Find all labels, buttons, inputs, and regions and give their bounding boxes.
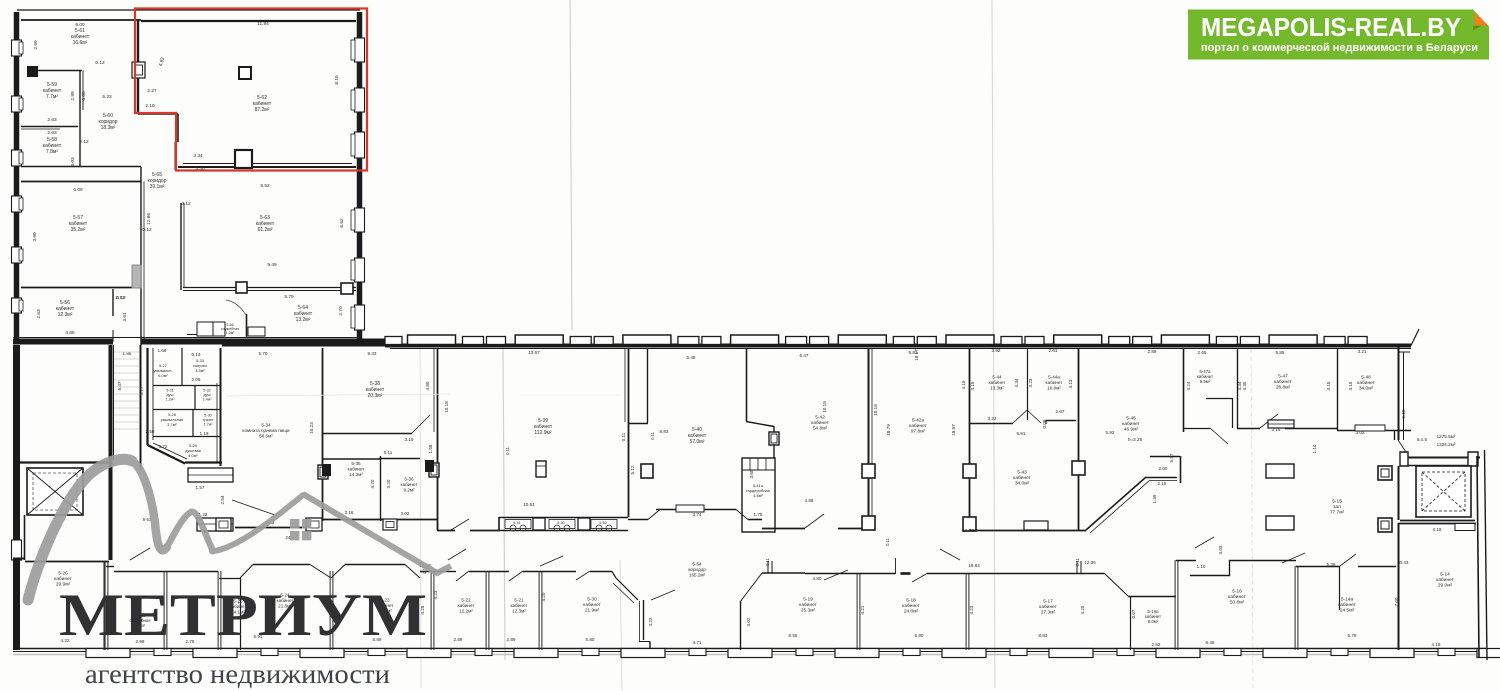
- svg-text:13.3м²: 13.3м²: [990, 385, 1004, 390]
- svg-text:3.21: 3.21: [1358, 349, 1367, 354]
- svg-text:77.7м²: 77.7м²: [1330, 510, 1345, 516]
- svg-text:1.10: 1.10: [1312, 444, 1317, 453]
- svg-text:25.3м²: 25.3м²: [801, 608, 816, 614]
- svg-text:3.16: 3.16: [1272, 427, 1281, 432]
- svg-text:2.27: 2.27: [147, 88, 157, 94]
- svg-text:5.77: 5.77: [139, 386, 144, 395]
- svg-text:5-38: 5-38: [370, 381, 380, 387]
- svg-text:1324.2м²: 1324.2м²: [1437, 442, 1456, 447]
- svg-text:5.91: 5.91: [1017, 431, 1026, 436]
- svg-text:5.23: 5.23: [102, 94, 112, 100]
- svg-text:5-15: 5-15: [1332, 498, 1342, 504]
- svg-text:5-22: 5-22: [461, 598, 471, 603]
- svg-text:5-32: 5-32: [203, 388, 210, 392]
- svg-text:6.09: 6.09: [73, 187, 83, 193]
- svg-text:кабинет: кабинет: [253, 101, 272, 107]
- svg-text:кабинет: кабинет: [366, 387, 385, 393]
- svg-text:3.30: 3.30: [195, 166, 205, 172]
- svg-text:4.13: 4.13: [1068, 379, 1073, 388]
- svg-text:5-51: 5-51: [513, 521, 521, 525]
- svg-text:5-61: 5-61: [75, 28, 85, 34]
- svg-text:кабинет: кабинет: [811, 420, 829, 426]
- svg-text:5-63: 5-63: [260, 215, 270, 221]
- svg-text:портал о коммерческой недвижим: портал о коммерческой недвижимости в Бел…: [1201, 42, 1478, 54]
- svg-text:0.07: 0.07: [1131, 609, 1136, 618]
- svg-text:5.80: 5.80: [586, 637, 595, 642]
- svg-text:0.12: 0.12: [116, 295, 126, 301]
- svg-text:0.12: 0.12: [142, 227, 152, 233]
- svg-text:13.67: 13.67: [528, 350, 540, 355]
- svg-text:кабинет: кабинет: [1436, 577, 1454, 583]
- svg-text:5-42а: 5-42а: [912, 417, 925, 423]
- svg-text:1.2м²: 1.2м²: [166, 398, 176, 402]
- svg-text:8.0м²: 8.0м²: [1148, 619, 1159, 624]
- svg-text:12.86: 12.86: [146, 213, 152, 225]
- svg-text:5-52: 5-52: [599, 521, 607, 525]
- svg-text:87.2м²: 87.2м²: [255, 107, 270, 113]
- svg-text:3.12: 3.12: [181, 201, 191, 207]
- svg-text:2.59: 2.59: [33, 40, 39, 50]
- svg-text:0.11: 0.11: [621, 432, 626, 441]
- svg-text:2.99: 2.99: [70, 91, 76, 101]
- svg-text:6.48: 6.48: [1206, 640, 1215, 645]
- svg-text:4.22: 4.22: [648, 617, 653, 626]
- svg-text:12.3м²: 12.3м²: [512, 608, 526, 613]
- svg-text:35.2м²: 35.2м²: [71, 227, 86, 233]
- svg-text:39.1м²: 39.1м²: [150, 184, 165, 190]
- svg-text:5-44а: 5-44а: [1048, 375, 1060, 380]
- svg-text:1.57: 1.57: [196, 485, 205, 490]
- svg-text:4.8м²: 4.8м²: [753, 493, 763, 498]
- svg-text:5-47: 5-47: [1278, 373, 1288, 379]
- svg-text:7.00: 7.00: [1394, 597, 1399, 606]
- svg-text:12.36: 12.36: [1084, 560, 1096, 565]
- svg-text:кабинет: кабинет: [71, 34, 90, 40]
- svg-text:46.9м²: 46.9м²: [1124, 427, 1139, 433]
- svg-text:4.66: 4.66: [65, 330, 75, 336]
- svg-text:9.2м²: 9.2м²: [403, 487, 415, 492]
- svg-text:2.10: 2.10: [145, 103, 155, 109]
- svg-text:2.89: 2.89: [454, 637, 463, 642]
- svg-text:5-34: 5-34: [261, 422, 271, 427]
- svg-text:5-31: 5-31: [166, 388, 173, 392]
- svg-text:коридор: коридор: [98, 119, 117, 125]
- svg-text:3.02: 3.02: [746, 617, 751, 626]
- svg-text:7.7м²: 7.7м²: [46, 94, 58, 100]
- svg-text:кабинет: кабинет: [1046, 380, 1064, 385]
- svg-text:21.9м²: 21.9м²: [585, 608, 600, 614]
- svg-text:1.75: 1.75: [754, 512, 763, 517]
- svg-text:0.11: 0.11: [650, 431, 655, 440]
- svg-text:9.52: 9.52: [260, 183, 270, 189]
- svg-text:112.9м²: 112.9м²: [534, 430, 552, 436]
- svg-text:2.89: 2.89: [507, 637, 516, 642]
- svg-text:5-40: 5-40: [692, 427, 702, 433]
- svg-text:кабинет: кабинет: [348, 466, 366, 471]
- svg-text:5-14: 5-14: [1440, 571, 1450, 577]
- svg-text:5-54: 5-54: [692, 562, 702, 567]
- svg-text:кабинет: кабинет: [43, 88, 62, 94]
- svg-text:6.47: 6.47: [800, 353, 809, 358]
- svg-text:зал: зал: [1333, 505, 1341, 510]
- svg-text:5.48: 5.48: [687, 355, 696, 360]
- svg-text:2.67: 2.67: [1056, 409, 1065, 414]
- svg-text:МЕТРИУМ: МЕТРИУМ: [59, 582, 427, 648]
- svg-text:1.39: 1.39: [1152, 494, 1157, 503]
- svg-text:2.70: 2.70: [338, 306, 344, 316]
- svg-text:6.0м²: 6.0м²: [158, 373, 168, 378]
- svg-text:кабинет: кабинет: [1013, 475, 1031, 481]
- svg-text:5-14а: 5-14а: [1341, 596, 1354, 602]
- svg-text:19.78: 19.78: [962, 528, 974, 533]
- svg-text:кабинет: кабинет: [688, 433, 707, 439]
- svg-text:4.23: 4.23: [1028, 378, 1033, 387]
- svg-text:4.15: 4.15: [1348, 381, 1353, 390]
- svg-text:5-44: 5-44: [992, 375, 1002, 380]
- svg-text:коридор: коридор: [688, 567, 706, 572]
- svg-text:5-60: 5-60: [103, 113, 113, 119]
- svg-text:10.18: 10.18: [873, 404, 878, 416]
- svg-text:3.90: 3.90: [32, 232, 38, 242]
- svg-text:5-57: 5-57: [73, 215, 83, 221]
- svg-text:5.18: 5.18: [1401, 409, 1406, 418]
- svg-text:12.3м²: 12.3м²: [58, 312, 73, 318]
- svg-text:14.3м²: 14.3м²: [349, 472, 363, 477]
- svg-text:кабинет: кабинет: [458, 603, 476, 608]
- svg-text:56.6м²: 56.6м²: [259, 434, 273, 439]
- svg-text:165.2м²: 165.2м²: [689, 572, 706, 577]
- svg-text:душ: душ: [204, 393, 211, 397]
- svg-text:1.10: 1.10: [1197, 564, 1206, 569]
- svg-text:18.79: 18.79: [886, 424, 891, 436]
- svg-text:4.23: 4.23: [433, 590, 438, 599]
- svg-text:18.3м²: 18.3м²: [101, 125, 116, 131]
- svg-text:3.03: 3.03: [70, 157, 76, 167]
- svg-text:5-45: 5-45: [1126, 415, 1136, 421]
- svg-text:13.2м²: 13.2м²: [296, 317, 311, 323]
- svg-text:26.8м²: 26.8м²: [1276, 385, 1291, 391]
- svg-text:0.08: 0.08: [1042, 419, 1047, 428]
- svg-text:5-19: 5-19: [803, 596, 813, 602]
- svg-text:5-64: 5-64: [298, 305, 308, 311]
- svg-text:7.8м²: 7.8м²: [46, 149, 58, 155]
- svg-text:6.47: 6.47: [117, 381, 122, 390]
- svg-text:10.61: 10.61: [523, 502, 535, 507]
- svg-text:4.18: 4.18: [1433, 527, 1442, 532]
- svg-text:5-30: 5-30: [204, 413, 211, 417]
- svg-text:3.61: 3.61: [122, 312, 128, 322]
- svg-text:2.63: 2.63: [47, 117, 57, 123]
- svg-text:2.63: 2.63: [36, 309, 42, 319]
- svg-text:4.21: 4.21: [860, 605, 865, 614]
- svg-text:5.79: 5.79: [284, 294, 294, 300]
- svg-text:24: 24: [286, 535, 291, 540]
- svg-text:3.65: 3.65: [749, 469, 754, 478]
- svg-text:4.80: 4.80: [425, 381, 430, 390]
- svg-text:3.22: 3.22: [988, 416, 997, 421]
- svg-text:кабинет: кабинет: [1338, 602, 1356, 608]
- svg-text:2.00: 2.00: [1159, 466, 1168, 471]
- svg-text:27.3м²: 27.3м²: [1041, 610, 1056, 616]
- svg-text:0.12: 0.12: [95, 60, 105, 66]
- svg-text:4.20: 4.20: [541, 592, 546, 601]
- svg-text:4.15: 4.15: [1326, 381, 1331, 390]
- svg-text:5.90: 5.90: [915, 633, 924, 638]
- svg-text:3.02: 3.02: [401, 511, 410, 516]
- svg-text:0.12: 0.12: [79, 139, 89, 145]
- svg-text:кабинет: кабинет: [583, 602, 601, 608]
- svg-text:5.78: 5.78: [1348, 633, 1357, 638]
- svg-text:1.58: 1.58: [428, 444, 433, 453]
- svg-text:5-39: 5-39: [538, 418, 548, 424]
- svg-text:5-35: 5-35: [351, 461, 361, 466]
- svg-text:9.49: 9.49: [267, 262, 277, 268]
- svg-text:34.0м²: 34.0м²: [1359, 386, 1374, 392]
- svg-text:кабинет: кабинет: [1357, 380, 1375, 386]
- svg-text:0.43: 0.43: [1400, 560, 1409, 565]
- svg-text:3.72: 3.72: [159, 444, 168, 449]
- svg-text:11.84: 11.84: [257, 21, 269, 27]
- svg-text:5-59: 5-59: [47, 82, 57, 88]
- svg-text:9.5м²: 9.5м²: [1200, 379, 1211, 384]
- svg-text:5-42: 5-42: [815, 414, 825, 420]
- svg-text:0.11: 0.11: [505, 446, 510, 455]
- svg-text:5-36: 5-36: [404, 477, 414, 482]
- svg-text:97.8м²: 97.8м²: [911, 429, 926, 435]
- svg-text:туалет: туалет: [202, 418, 214, 422]
- svg-text:комната приема пищи: комната приема пищи: [242, 428, 290, 433]
- svg-text:8.83: 8.83: [1039, 633, 1048, 638]
- svg-text:кабинет: кабинет: [799, 602, 817, 608]
- svg-text:душ: душ: [167, 393, 174, 397]
- svg-text:6.00: 6.00: [75, 22, 85, 28]
- svg-text:кабинет: кабинет: [43, 143, 62, 149]
- svg-text:3.92: 3.92: [992, 348, 1001, 353]
- svg-text:4.18: 4.18: [1432, 642, 1441, 647]
- svg-text:5-62: 5-62: [257, 95, 267, 101]
- svg-text:5-58: 5-58: [47, 137, 57, 143]
- svg-text:10.18: 10.18: [444, 401, 449, 413]
- svg-text:3.03: 3.03: [1218, 545, 1223, 554]
- svg-text:1.19: 1.19: [200, 431, 209, 436]
- svg-text:кабинет: кабинет: [989, 380, 1007, 385]
- svg-text:4.23: 4.23: [969, 605, 974, 614]
- svg-text:29.0м²: 29.0м²: [1438, 583, 1453, 589]
- svg-text:10.23: 10.23: [309, 422, 314, 434]
- svg-text:5.92: 5.92: [1106, 430, 1115, 435]
- svg-text:1.66: 1.66: [158, 348, 167, 353]
- svg-text:16.6м²: 16.6м²: [73, 40, 88, 46]
- svg-text:6.62: 6.62: [339, 218, 345, 228]
- svg-text:5-17: 5-17: [1043, 598, 1053, 604]
- svg-text:кабинет: кабинет: [909, 423, 927, 429]
- svg-text:3.34: 3.34: [193, 153, 203, 159]
- svg-text:2.63: 2.63: [47, 130, 57, 136]
- svg-text:19.84: 19.84: [968, 563, 980, 568]
- svg-text:54.8м²: 54.8м²: [813, 426, 828, 432]
- svg-text:кабинет: кабинет: [1228, 594, 1246, 600]
- svg-text:2.50: 2.50: [146, 429, 155, 434]
- svg-text:4.80: 4.80: [813, 576, 822, 581]
- svg-text:5-50: 5-50: [557, 521, 565, 525]
- svg-text:0.11: 0.11: [885, 537, 890, 546]
- svg-text:кабинет: кабинет: [401, 482, 419, 487]
- svg-text:2.65: 2.65: [1198, 350, 1207, 355]
- svg-text:0.13: 0.13: [192, 352, 201, 357]
- svg-text:8.15: 8.15: [334, 75, 340, 85]
- svg-text:5-26: 5-26: [58, 570, 68, 576]
- svg-text:кабинет: кабинет: [902, 603, 920, 609]
- svg-text:5-21: 5-21: [514, 598, 524, 603]
- svg-text:5-65: 5-65: [152, 172, 162, 178]
- svg-text:5.87: 5.87: [1169, 453, 1174, 462]
- svg-text:кабинет: кабинет: [256, 221, 275, 227]
- svg-text:5-56: 5-56: [60, 300, 70, 306]
- svg-text:2.15: 2.15: [1158, 481, 1167, 486]
- svg-text:20.3м²: 20.3м²: [368, 393, 383, 399]
- svg-text:18.17: 18.17: [914, 349, 919, 361]
- svg-text:5.38: 5.38: [1327, 562, 1336, 567]
- svg-text:коридор: коридор: [147, 178, 166, 184]
- svg-text:4.25: 4.25: [1080, 605, 1085, 614]
- svg-text:4.15: 4.15: [970, 381, 975, 390]
- svg-text:h=3.28: h=3.28: [1128, 437, 1143, 442]
- svg-text:24.0м²: 24.0м²: [904, 609, 919, 615]
- svg-text:3.19: 3.19: [405, 437, 414, 442]
- svg-text:2.89: 2.89: [1148, 349, 1157, 354]
- svg-text:2.05: 2.05: [192, 377, 201, 382]
- svg-text:5-16: 5-16: [1232, 588, 1242, 594]
- svg-text:3.3м²: 3.3м²: [195, 368, 205, 373]
- svg-text:кабинет: кабинет: [511, 603, 529, 608]
- svg-text:24.5м²: 24.5м²: [1340, 608, 1355, 614]
- svg-text:5-30: 5-30: [587, 596, 597, 602]
- svg-text:5.33: 5.33: [368, 351, 377, 356]
- svg-text:61.2м²: 61.2м²: [258, 227, 273, 233]
- svg-text:кабинет: кабинет: [1122, 421, 1140, 427]
- svg-text:кабинет: кабинет: [56, 306, 75, 312]
- svg-text:4.70: 4.70: [370, 479, 375, 488]
- svg-text:1275.5м²: 1275.5м²: [1437, 434, 1456, 439]
- svg-text:5.12: 5.12: [630, 465, 635, 474]
- svg-text:агентство недвижимости: агентство недвижимости: [85, 659, 390, 689]
- svg-text:3.7м²: 3.7м²: [167, 422, 177, 427]
- svg-text:6.55: 6.55: [789, 633, 798, 638]
- svg-text:5.85: 5.85: [1276, 350, 1285, 355]
- svg-text:4.71: 4.71: [693, 640, 702, 645]
- svg-text:34.0м²: 34.0м²: [1015, 481, 1030, 487]
- svg-text:18.57: 18.57: [951, 424, 956, 436]
- svg-text:10.8м²: 10.8м²: [1047, 385, 1061, 390]
- svg-text:кабинет: кабинет: [534, 424, 553, 430]
- svg-text:3.20: 3.20: [386, 479, 391, 488]
- svg-text:5-43: 5-43: [1017, 469, 1027, 475]
- svg-text:2.52: 2.52: [1152, 642, 1161, 647]
- svg-text:4.0м²: 4.0м²: [188, 453, 198, 458]
- svg-text:2.54: 2.54: [220, 495, 225, 504]
- svg-text:3.74: 3.74: [693, 512, 702, 517]
- svg-text:5-18: 5-18: [906, 597, 916, 603]
- svg-text:10.18: 10.18: [822, 401, 827, 413]
- svg-text:12.2м²: 12.2м²: [459, 608, 473, 613]
- svg-text:4.15: 4.15: [961, 380, 966, 389]
- svg-text:1.7м²: 1.7м²: [204, 423, 214, 427]
- svg-text:4.35: 4.35: [1242, 381, 1247, 390]
- svg-text:кабинет: кабинет: [69, 221, 88, 227]
- svg-text:5.70: 5.70: [259, 351, 268, 356]
- svg-text:4.88: 4.88: [805, 498, 814, 503]
- svg-text:5-48: 5-48: [1361, 374, 1371, 380]
- svg-text:1.4м²: 1.4м²: [203, 398, 213, 402]
- svg-text:0.11: 0.11: [384, 450, 393, 455]
- svg-text:кабинет: кабинет: [1274, 379, 1292, 385]
- svg-text:8.83: 8.83: [660, 429, 669, 434]
- svg-text:4.34: 4.34: [1014, 378, 1019, 387]
- svg-text:6.08: 6.08: [81, 91, 87, 101]
- svg-text:2.61: 2.61: [1049, 348, 1058, 353]
- svg-text:50.8м²: 50.8м²: [1230, 600, 1245, 606]
- svg-text:1.2м²: 1.2м²: [226, 331, 235, 335]
- svg-text:MEGAPOLIS-REAL.BY: MEGAPOLIS-REAL.BY: [1201, 14, 1461, 42]
- svg-text:кабинет: кабинет: [1039, 604, 1057, 610]
- svg-text:в.п.5: в.п.5: [1417, 437, 1427, 442]
- svg-text:кабинет: кабинет: [294, 311, 313, 317]
- svg-text:4.24: 4.24: [1186, 381, 1191, 390]
- svg-text:3.16: 3.16: [345, 510, 354, 515]
- svg-text:3.02: 3.02: [1356, 430, 1365, 435]
- svg-text:57.0м²: 57.0м²: [690, 439, 705, 445]
